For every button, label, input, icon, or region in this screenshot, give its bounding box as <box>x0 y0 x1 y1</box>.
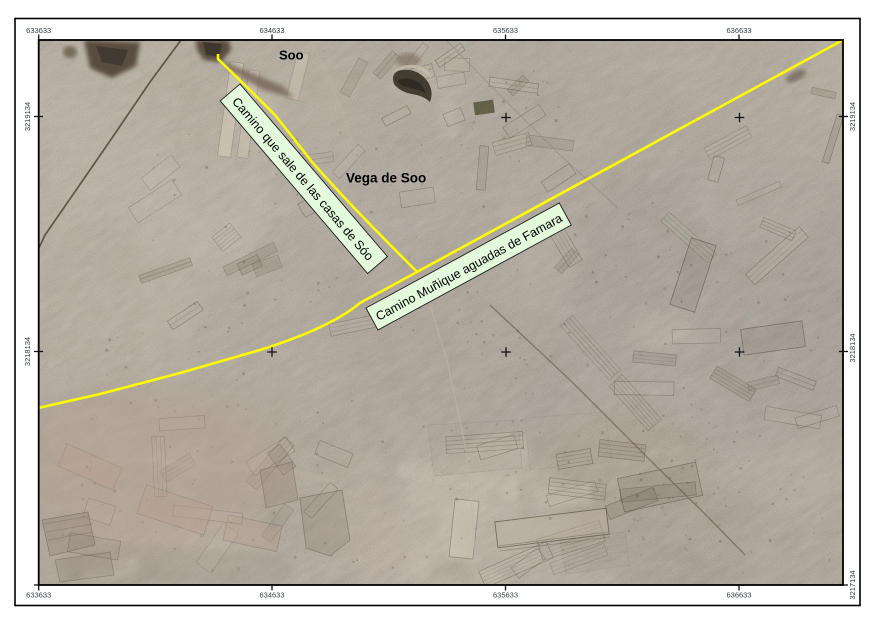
svg-text:633633: 633633 <box>26 26 51 35</box>
svg-text:636633: 636633 <box>726 26 751 35</box>
svg-text:Vega de Soo: Vega de Soo <box>346 171 426 186</box>
svg-text:3218134: 3218134 <box>23 337 32 366</box>
svg-text:635633: 635633 <box>493 591 518 600</box>
svg-text:3219134: 3219134 <box>848 102 857 131</box>
svg-text:634633: 634633 <box>259 591 284 600</box>
svg-text:636633: 636633 <box>726 591 751 600</box>
svg-text:634633: 634633 <box>259 26 284 35</box>
svg-text:Soo: Soo <box>279 48 304 63</box>
svg-text:635633: 635633 <box>493 26 518 35</box>
svg-text:3218134: 3218134 <box>848 333 857 362</box>
svg-text:3217134: 3217134 <box>848 570 857 599</box>
svg-text:633633: 633633 <box>26 591 51 600</box>
svg-text:3219134: 3219134 <box>23 102 32 131</box>
